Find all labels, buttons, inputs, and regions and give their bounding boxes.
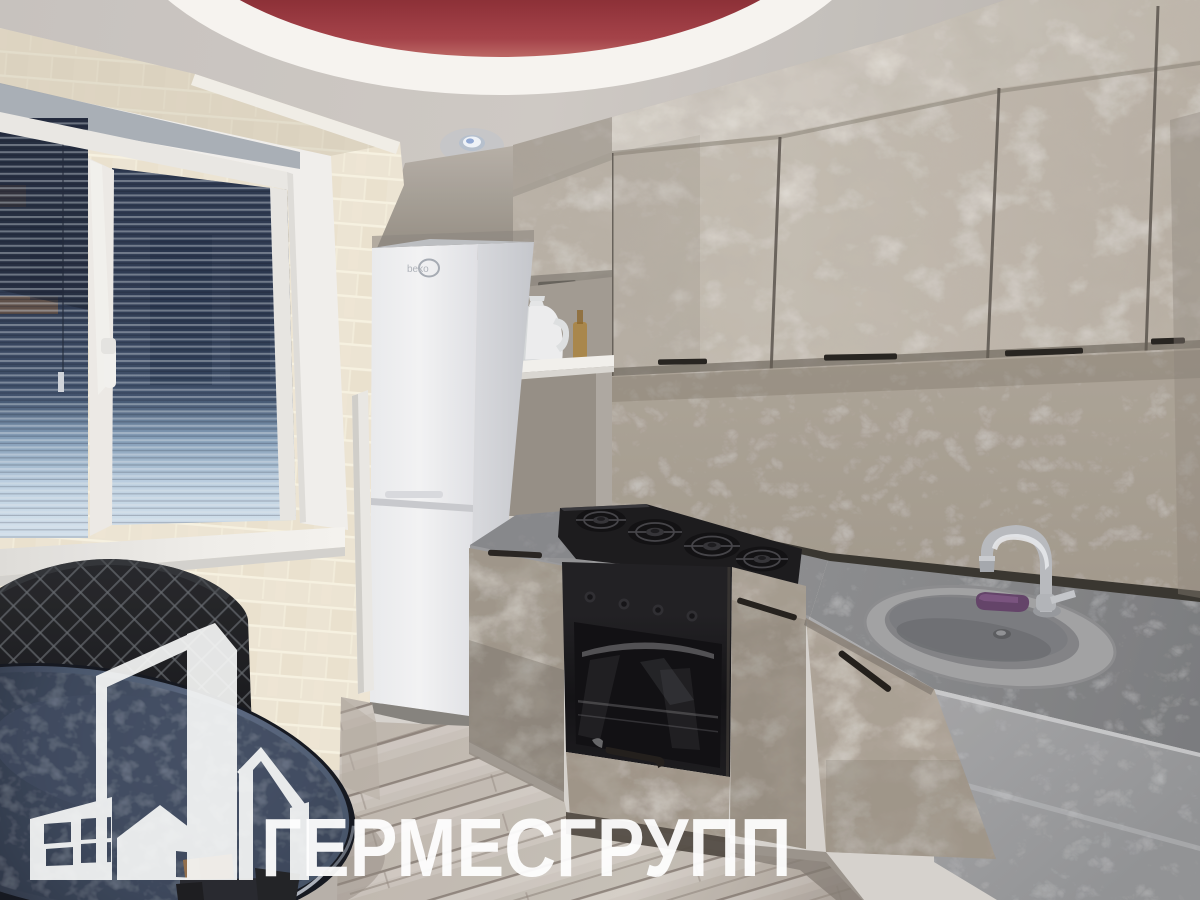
svg-text:ГЕРМЕСГРУПП: ГЕРМЕСГРУПП [261, 802, 792, 894]
